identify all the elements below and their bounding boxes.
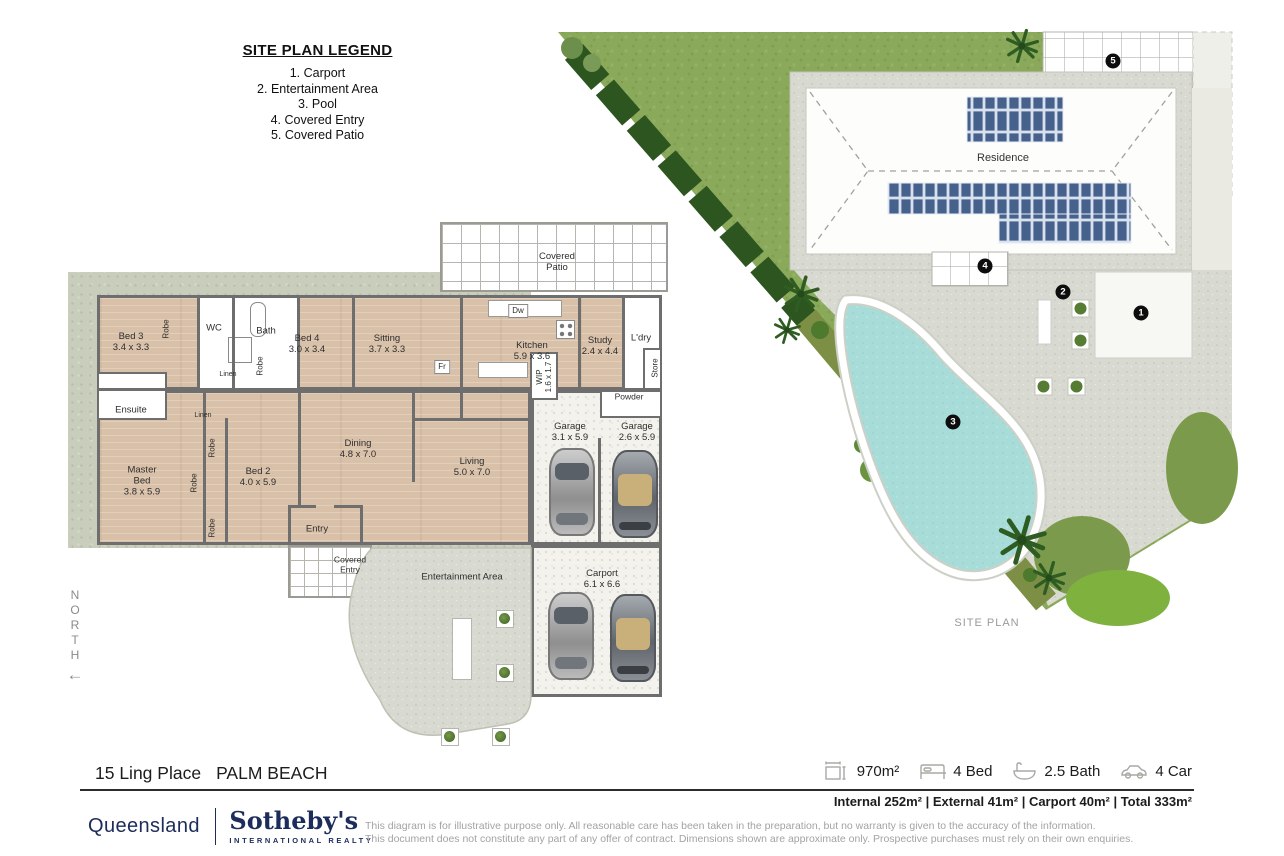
planter-box [441,728,459,746]
area-breakdown: Internal 252m² | External 41m² | Carport… [834,794,1192,809]
solar-array [999,214,1131,243]
planter-box [496,664,514,682]
property-stats: 970m² 4 Bed 2.5 Bath 4 Car [812,760,1192,782]
residence-label: Residence [977,152,1029,164]
entertainment-paving [349,548,531,735]
stat-value: 4 Car [1155,763,1192,780]
planter-box [496,610,514,628]
site-plan-caption: SITE PLAN [954,617,1019,629]
site-marker-4: 4 [978,259,993,274]
stat-beds: 4 Bed [919,761,992,781]
grass-patch [1066,570,1170,626]
car-icon [1120,762,1148,780]
site-marker-2: 2 [1056,285,1071,300]
solar-array [888,183,1131,214]
disclaimer-line-2: This document does not constitute any pa… [365,833,1133,846]
solar-array [967,97,1063,142]
stat-value: 2.5 Bath [1044,763,1100,780]
grass-patch [1166,412,1238,524]
planter-box [492,728,510,746]
stat-value: 970m² [857,763,900,780]
address-suburb: PALM BEACH [216,763,328,783]
brand-divider [215,808,217,845]
disclaimer: This diagram is for illustrative purpose… [365,820,1133,846]
brand-name: Sotheby's [229,809,373,833]
stat-baths: 2.5 Bath [1012,761,1100,782]
site-marker-5: 5 [1106,54,1121,69]
brand-subtitle: INTERNATIONAL REALTY [229,836,373,845]
agency-logo: Queensland Sotheby's INTERNATIONAL REALT… [88,808,373,845]
bed-icon [919,761,946,781]
property-address: 15 Ling PlacePALM BEACH [95,763,328,784]
land-area-icon [824,760,850,782]
floorplan-document: SITE PLAN LEGEND 1. Carport2. Entertainm… [0,0,1284,856]
site-right-path [1192,88,1232,270]
stat-land-area: 970m² [824,760,900,782]
bath-icon [1012,761,1037,782]
bench [452,618,472,680]
site-marker-1: 1 [1134,306,1149,321]
site-marker-3: 3 [946,415,961,430]
brand-region: Queensland [88,815,200,838]
stat-value: 4 Bed [953,763,992,780]
site-plan: Residence [0,0,1284,856]
stat-cars: 4 Car [1120,762,1192,780]
address-street: 15 Ling Place [95,763,201,783]
footer-divider [80,789,1194,791]
disclaimer-line-1: This diagram is for illustrative purpose… [365,820,1133,833]
site-covered-entry [932,252,1008,286]
